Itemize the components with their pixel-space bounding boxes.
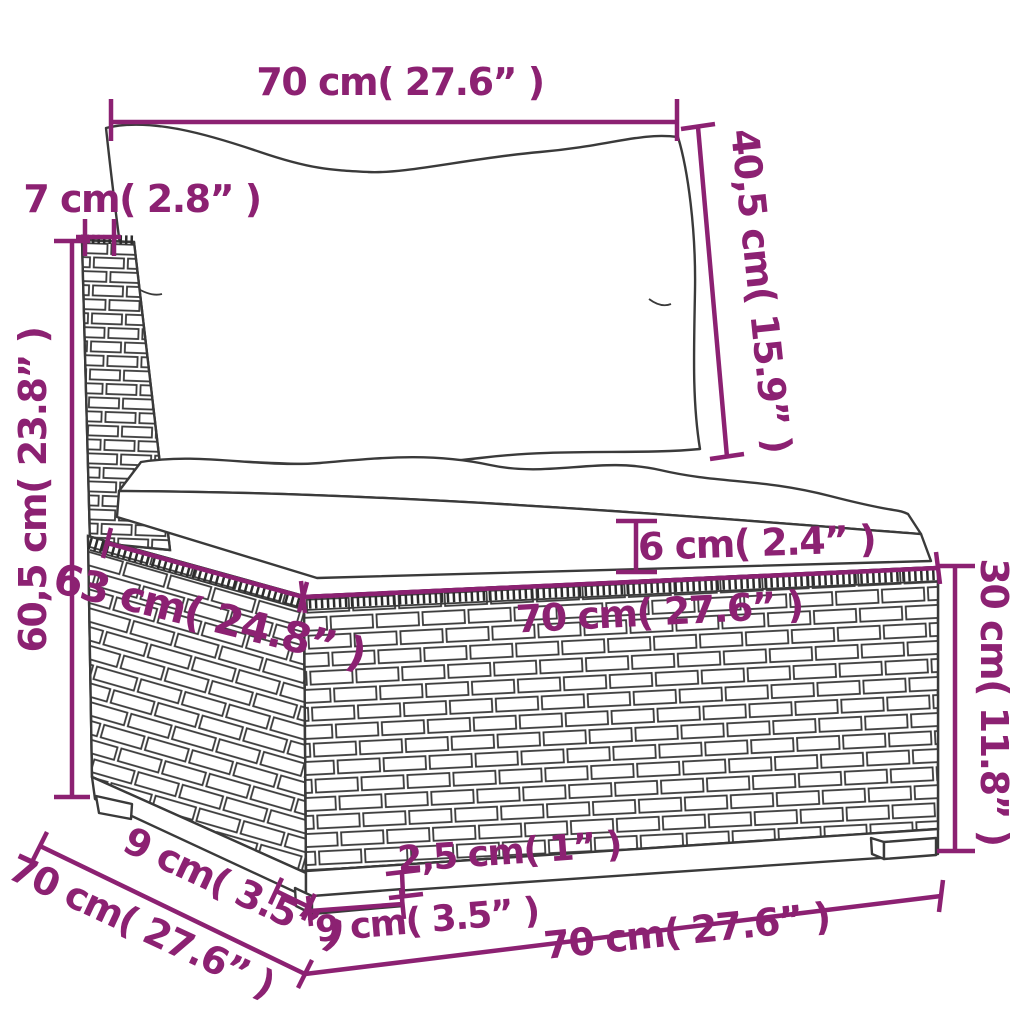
- dim-label-base-width-bottom: 70 cm( 27.6” ): [542, 894, 832, 968]
- dim-label-back-cushion-height: 40,5 cm( 15.9” ): [722, 127, 800, 455]
- foot-front-right: [871, 838, 936, 859]
- back-cushion: [106, 125, 700, 466]
- dim-label-back-cushion-width: 70 cm( 27.6” ): [256, 60, 543, 104]
- dim-total-height: 60,5 cm( 23.8” ): [11, 241, 90, 797]
- dim-back-cushion-height: 40,5 cm( 15.9” ): [681, 124, 800, 459]
- diagram-page: 70 cm( 27.6” ) 7 cm( 2.8” ) 40,5 cm( 15.…: [0, 0, 1024, 1024]
- dim-label-post-width: 7 cm( 2.8” ): [23, 177, 260, 221]
- dim-label-base-height: 30 cm( 11.8” ): [972, 558, 1016, 845]
- sofa-dimension-diagram: 70 cm( 27.6” ) 7 cm( 2.8” ) 40,5 cm( 15.…: [0, 0, 1024, 1024]
- dim-base-height: 30 cm( 11.8” ): [937, 558, 1016, 851]
- dim-back-cushion-width: 70 cm( 27.6” ): [111, 60, 677, 141]
- dim-label-total-height: 60,5 cm( 23.8” ): [11, 327, 55, 652]
- dim-label-seat-cushion-thickness: 6 cm( 2.4” ): [637, 517, 876, 569]
